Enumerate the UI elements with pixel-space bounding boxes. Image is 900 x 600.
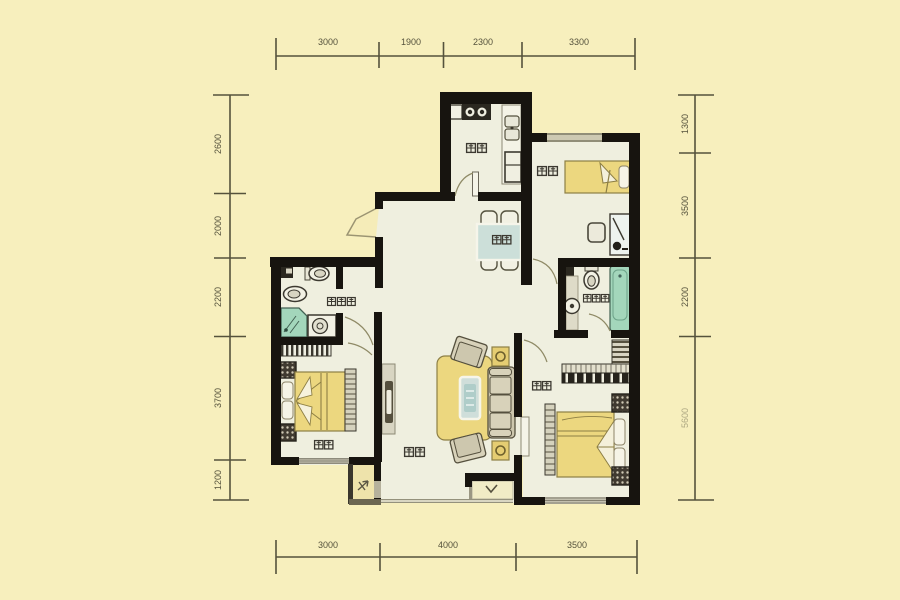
svg-text:3700: 3700 — [213, 388, 223, 408]
svg-text:2300: 2300 — [473, 37, 493, 47]
svg-text:1900: 1900 — [401, 37, 421, 47]
svg-text:2600: 2600 — [213, 134, 223, 154]
svg-text:3000: 3000 — [318, 540, 338, 550]
svg-text:2200: 2200 — [680, 287, 690, 307]
svg-text:3000: 3000 — [318, 37, 338, 47]
svg-text:4000: 4000 — [438, 540, 458, 550]
svg-text:1200: 1200 — [213, 470, 223, 490]
svg-text:1300: 1300 — [680, 114, 690, 134]
svg-text:3500: 3500 — [680, 196, 690, 216]
svg-text:3300: 3300 — [569, 37, 589, 47]
svg-text:2200: 2200 — [213, 287, 223, 307]
svg-text:3500: 3500 — [567, 540, 587, 550]
svg-text:2000: 2000 — [213, 216, 223, 236]
svg-text:5600: 5600 — [680, 408, 690, 428]
